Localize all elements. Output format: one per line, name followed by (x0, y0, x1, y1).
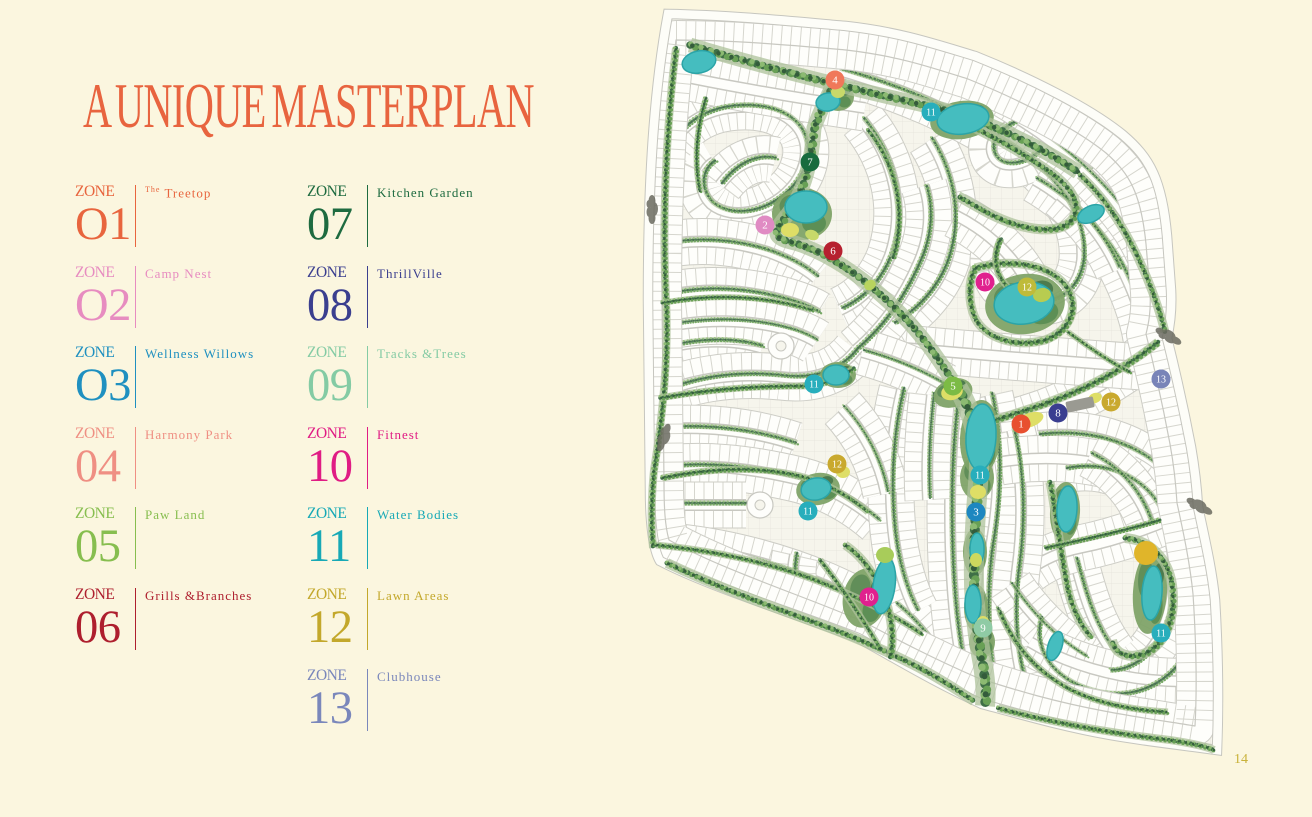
svg-text:9: 9 (980, 623, 986, 635)
svg-text:5: 5 (950, 381, 956, 393)
svg-text:11: 11 (926, 108, 936, 119)
svg-text:11: 11 (975, 471, 985, 482)
svg-text:12: 12 (1022, 283, 1032, 294)
svg-text:10: 10 (864, 593, 874, 604)
svg-text:1: 1 (1018, 419, 1024, 431)
svg-text:13: 13 (1156, 375, 1166, 386)
svg-text:8: 8 (1055, 408, 1061, 420)
svg-text:7: 7 (807, 157, 813, 169)
svg-text:11: 11 (1156, 629, 1166, 640)
svg-text:4: 4 (832, 75, 838, 87)
svg-text:11: 11 (809, 380, 819, 391)
svg-text:2: 2 (762, 220, 768, 232)
svg-text:3: 3 (973, 507, 979, 519)
svg-text:6: 6 (830, 246, 836, 258)
svg-text:10: 10 (980, 278, 990, 289)
svg-text:12: 12 (1106, 398, 1116, 409)
svg-text:12: 12 (832, 460, 842, 471)
svg-text:11: 11 (803, 507, 813, 518)
